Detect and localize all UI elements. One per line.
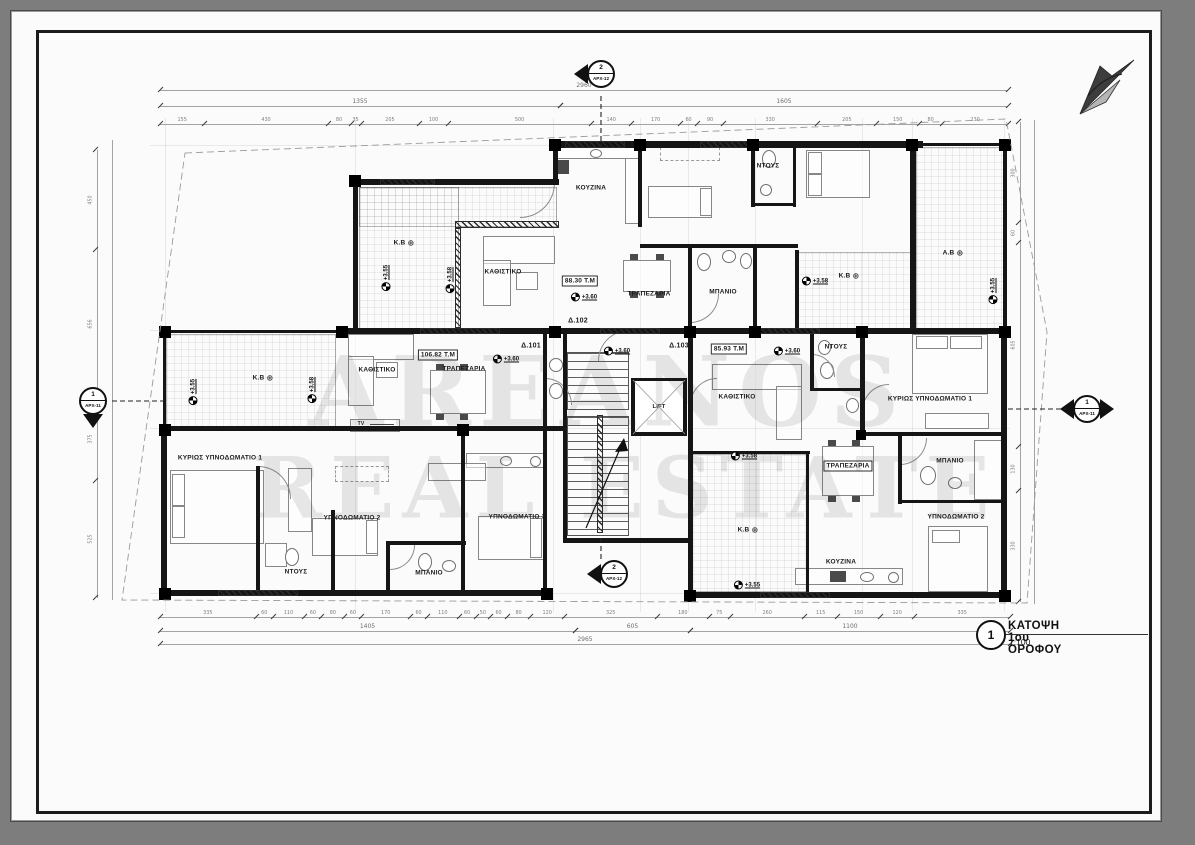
room-label: Κ.Β⊕ [738, 526, 759, 535]
column [549, 139, 561, 151]
fixture [590, 149, 602, 158]
hatched-wall [455, 221, 559, 228]
fixture [442, 560, 456, 572]
furniture [974, 440, 1004, 500]
wall [806, 453, 809, 593]
column [336, 326, 348, 338]
section-divider [589, 73, 613, 74]
level-icon [989, 295, 998, 304]
section-number: 1 [1073, 399, 1101, 406]
dimension-label: 60 [261, 611, 267, 616]
section-triangle [1100, 399, 1114, 419]
dimension-label: 150 [893, 118, 902, 123]
column [747, 139, 759, 151]
dimension-label: 60 [310, 611, 316, 616]
wall [920, 143, 1006, 146]
section-number: 2 [600, 564, 628, 571]
appliance [828, 440, 836, 446]
hatched-wall [597, 415, 603, 533]
wall [683, 378, 687, 436]
dimension-line [575, 631, 690, 632]
dimension-label: 205 [842, 118, 851, 123]
column [457, 424, 469, 436]
dimension-line [97, 150, 98, 598]
wall [640, 244, 798, 248]
dimension-label: 130 [1012, 464, 1017, 473]
dimension-line [160, 124, 1008, 125]
section-marker-bottom: 2ΑΡΧ-12 [600, 560, 628, 588]
drawing-number-badge: 1 [976, 620, 1006, 650]
furniture [932, 530, 960, 543]
section-ref: ΑΡΧ-12 [587, 76, 615, 81]
fixture [549, 358, 563, 372]
appliance [828, 496, 836, 502]
dimension-label: 60 [464, 611, 470, 616]
dimension-label: 1100 [842, 624, 857, 630]
hatched-wall [218, 590, 298, 596]
fixture-circle-icon: ⊕ [956, 249, 963, 258]
appliance [852, 440, 860, 446]
level-icon [734, 581, 743, 590]
wall [753, 248, 757, 330]
furniture [428, 463, 486, 481]
dimension-label: 155 [178, 118, 187, 123]
room-label: ΤΡΑΠΕΖΑΡΙΑ [442, 366, 485, 373]
fixture-circle-icon: ⊕ [852, 272, 859, 281]
wall [688, 332, 693, 594]
level-marker: +3.58 [731, 452, 757, 461]
section-divider [602, 573, 626, 574]
furniture [366, 520, 378, 554]
wall [331, 510, 335, 592]
dimension-label: 110 [438, 611, 447, 616]
wall [795, 250, 799, 330]
wall [161, 428, 167, 596]
hatched-wall [600, 328, 660, 334]
column [749, 326, 761, 338]
room-label: ΚΥΡΙΩΣ ΥΠΝΟΔΩΜΑΤΙΟ 1 [888, 396, 972, 403]
hatched-wall [380, 179, 435, 185]
dimension-line [1020, 122, 1021, 602]
furniture [950, 336, 982, 349]
wall [163, 332, 166, 430]
furniture [776, 386, 802, 440]
room-label: ΚΟΥΖΙΝΑ [826, 559, 856, 566]
room-label: Κ.Β⊕ [839, 272, 860, 281]
dimension-label: 335 [957, 611, 966, 616]
furniture [808, 152, 822, 174]
wall [810, 332, 814, 390]
room-label: Κ.Β⊕ [394, 239, 415, 248]
appliance [830, 571, 846, 582]
apartment-id: Δ.102 [568, 318, 588, 325]
section-triangle [587, 564, 601, 584]
column [541, 588, 553, 600]
wall [688, 246, 692, 332]
dimension-label: 75 [716, 611, 722, 616]
room-label: ΤΡΑΠΕΖΑΡΙΑ [627, 291, 670, 298]
wall [860, 328, 865, 438]
dimension-label: 375 [89, 434, 94, 443]
apartment-id: Δ.103 [669, 343, 689, 350]
level-marker: +3.60 [604, 347, 630, 356]
room-label: ΚΑΘΙΣΤΙΚΟ [718, 394, 755, 401]
dimension-label: 325 [606, 611, 615, 616]
dimension-label: 525 [89, 535, 94, 544]
dimension-label: 205 [385, 118, 394, 123]
fixture [860, 572, 874, 582]
room-label: ΚΑΘΙΣΤΙΚΟ [358, 367, 395, 374]
dimension-label: 300 [1012, 168, 1017, 177]
dimension-label: 430 [261, 118, 270, 123]
room-label: Κ.Β⊕ [253, 374, 274, 383]
column [549, 326, 561, 338]
veranda-grid [797, 252, 911, 330]
dimension-label: 450 [89, 196, 94, 205]
dimension-line [690, 631, 1010, 632]
dimension-label: 80 [928, 118, 934, 123]
fixture-circle-icon: ⊕ [751, 526, 758, 535]
wall [353, 183, 358, 332]
level-marker: +3.55 [734, 581, 760, 590]
dimension-label: 120 [542, 611, 551, 616]
room-label: ΤΡΑΠΕΖΑΡΙΑ [823, 461, 872, 472]
wall [898, 500, 1005, 503]
fixture [500, 456, 512, 466]
fixture [888, 572, 899, 583]
furniture [172, 474, 185, 506]
wall [631, 378, 687, 381]
hatched-wall [455, 228, 461, 328]
column [906, 139, 918, 151]
area-label: 88.30 Τ.Μ [562, 276, 598, 287]
room-label: ΚΑΘΙΣΤΙΚΟ [484, 269, 521, 276]
column [684, 590, 696, 602]
dimension-label: 120 [892, 611, 901, 616]
wardrobe-dashed [335, 466, 389, 482]
level-marker: +3.58 [446, 267, 455, 293]
wall [563, 332, 567, 538]
fixture [530, 456, 541, 467]
furniture [623, 260, 671, 292]
apartment-id: Δ.101 [521, 343, 541, 350]
lift-label: LIFT [652, 404, 665, 410]
wall [165, 330, 343, 333]
dimension-line [160, 90, 1008, 91]
furniture [172, 506, 185, 538]
section-divider [1075, 408, 1099, 409]
dimension-label: 180 [678, 611, 687, 616]
fixture [920, 466, 936, 485]
level-icon [571, 293, 580, 302]
wall [793, 145, 796, 207]
level-icon [802, 277, 811, 286]
dimension-line [560, 106, 1008, 107]
appliance [436, 414, 444, 420]
furniture [925, 413, 989, 429]
room-label: ΝΤΟΥΣ [757, 163, 780, 170]
dimension-label: 80 [336, 118, 342, 123]
wall [631, 378, 635, 436]
dimension-label: 90 [707, 118, 713, 123]
dimension-label: 110 [284, 611, 293, 616]
level-marker: +3.60 [774, 347, 800, 356]
wall [1001, 330, 1007, 598]
section-triangle [574, 64, 588, 84]
fixture [948, 477, 962, 489]
dimension-label: 80 [330, 611, 336, 616]
section-number: 2 [587, 64, 615, 71]
wall [563, 538, 693, 543]
dimension-label: 1605 [776, 99, 791, 105]
level-marker: +3.60 [571, 293, 597, 302]
room-label: ΜΠΑΝΙΟ [415, 570, 443, 577]
level-marker: +3.55 [189, 379, 198, 405]
column [634, 139, 646, 151]
section-triangle [83, 414, 103, 428]
level-marker: +3.58 [802, 277, 828, 286]
dimension-label: 330 [1012, 542, 1017, 551]
dimension-line [1034, 120, 1035, 604]
appliance [630, 254, 638, 260]
level-icon [382, 282, 391, 291]
column [159, 588, 171, 600]
room-label: ΝΤΟΥΣ [825, 344, 848, 351]
dimension-label: 656 [89, 319, 94, 328]
wall [461, 428, 465, 592]
level-icon [604, 347, 613, 356]
dimension-label: 60 [350, 611, 356, 616]
room-label: ΚΥΡΙΩΣ ΥΠΝΟΔΩΜΑΤΙΟ 1 [178, 455, 262, 462]
dimension-label: 60 [1012, 230, 1017, 236]
furniture [430, 370, 486, 414]
appliance [370, 424, 394, 425]
dimension-label: 330 [766, 118, 775, 123]
wall [688, 592, 1006, 598]
wall [543, 332, 547, 428]
dimension-label: 260 [762, 611, 771, 616]
dimension-label: 500 [515, 118, 524, 123]
wall [386, 543, 390, 592]
column [349, 175, 361, 187]
column [856, 430, 866, 440]
area-label: 85.93 Τ.Μ [711, 344, 747, 355]
dimension-line [160, 106, 560, 107]
column [999, 326, 1011, 338]
fixture [722, 250, 736, 263]
dimension-label: 2965 [577, 637, 592, 643]
veranda-grid [359, 187, 459, 330]
column [159, 326, 171, 338]
furniture [288, 468, 312, 532]
section-marker-top: 2ΑΡΧ-12 [587, 60, 615, 88]
drawing-scale: 1:100 [1009, 637, 1030, 647]
wall [386, 541, 466, 545]
room-label: Α.Β⊕ [943, 249, 964, 258]
section-ref: ΑΡΧ-11 [79, 403, 107, 408]
dimension-label: 170 [381, 611, 390, 616]
column [159, 424, 171, 436]
section-divider [81, 400, 105, 401]
dimension-label: 605 [627, 624, 638, 630]
furniture [700, 188, 712, 216]
room-label: ΝΤΟΥΣ [285, 569, 308, 576]
room-label: ΚΟΥΖΙΝΑ [576, 185, 606, 192]
veranda-grid [692, 454, 808, 592]
dimension-label: 335 [203, 611, 212, 616]
dimension-label: 115 [816, 611, 825, 616]
furniture [530, 518, 542, 558]
level-icon [774, 347, 783, 356]
section-marker-left: 1ΑΡΧ-11 [79, 387, 107, 415]
dimension-label: 60 [685, 118, 691, 123]
wall [1003, 143, 1007, 333]
section-ref: ΑΡΧ-11 [1073, 411, 1101, 416]
appliance [460, 414, 468, 420]
area-label: 106.82 Τ.Μ [418, 350, 458, 361]
dimension-label: 605 [1012, 340, 1017, 349]
fixture [846, 398, 859, 413]
dimension-line [160, 644, 1010, 645]
level-icon [731, 452, 740, 461]
column [999, 139, 1011, 151]
column [999, 590, 1011, 602]
dimension-label: 1405 [360, 624, 375, 630]
furniture [795, 568, 903, 585]
level-marker: +3.55 [989, 278, 998, 304]
column [684, 326, 696, 338]
dimension-label: 230 [970, 118, 979, 123]
dimension-label: 60 [495, 611, 501, 616]
wall [543, 428, 547, 590]
wall [860, 432, 1006, 436]
level-icon [189, 396, 198, 405]
section-ref: ΑΡΧ-12 [600, 576, 628, 581]
drawing-sheet: ΚΟΥΖΙΝΑΚΑΘΙΣΤΙΚΟΤΡΑΠΕΖΑΡΙΑΜΠΑΝΙΟΝΤΟΥΣΚ.Β… [0, 0, 1195, 845]
appliance [852, 496, 860, 502]
dimension-label: 35 [352, 118, 358, 123]
level-icon [308, 394, 317, 403]
room-label: ΥΠΝΟΔΩΜΑΤΙΟ 2 [928, 514, 985, 521]
hatched-wall [565, 141, 625, 148]
furniture [348, 356, 374, 406]
wardrobe-dashed [660, 147, 720, 161]
room-label: ΜΠΑΝΙΟ [936, 458, 964, 465]
level-icon [493, 355, 502, 364]
dimension-line [160, 617, 1010, 618]
wall [638, 145, 642, 227]
section-marker-right: 1ΑΡΧ-11 [1073, 395, 1101, 423]
title-underline [1006, 634, 1148, 635]
dimension-label: 150 [854, 611, 863, 616]
wall [810, 388, 862, 391]
dimension-label: 80 [515, 611, 521, 616]
fixture [697, 253, 711, 271]
level-marker: +3.60 [493, 355, 519, 364]
fixture-circle-icon: ⊕ [266, 374, 273, 383]
dimension-line [112, 140, 113, 600]
hatched-wall [760, 592, 830, 598]
wall [898, 436, 902, 504]
dimension-label: 50 [480, 611, 486, 616]
tv-label: TV [358, 421, 365, 427]
appliance [656, 254, 664, 260]
fixture [418, 553, 432, 571]
wall [631, 432, 687, 436]
room-label: ΥΠΝΟΔΩΜΑΤΙΟ 3 [489, 514, 546, 521]
dimension-label: 140 [607, 118, 616, 123]
fixture [285, 548, 299, 566]
dimension-label: 100 [429, 118, 438, 123]
section-triangle [1060, 399, 1074, 419]
room-label: ΥΠΝΟΔΩΜΑΤΙΟ 2 [324, 515, 381, 522]
section-number: 1 [79, 391, 107, 398]
dimension-label: 1355 [352, 99, 367, 105]
room-label: ΜΠΑΝΙΟ [709, 289, 737, 296]
wall [256, 466, 260, 592]
fixture-circle-icon: ⊕ [407, 239, 414, 248]
wall [751, 145, 755, 207]
fixture [760, 184, 772, 196]
appliance [557, 160, 569, 174]
hatched-wall [420, 328, 500, 334]
dimension-label: 170 [651, 118, 660, 123]
dimension-line [160, 631, 575, 632]
column [856, 326, 868, 338]
level-marker: +3.58 [308, 377, 317, 403]
wall [910, 143, 916, 332]
level-marker: +3.55 [382, 265, 391, 291]
hatched-wall [760, 328, 820, 334]
furniture [265, 543, 287, 567]
dimension-label: 60 [415, 611, 421, 616]
furniture [808, 174, 822, 196]
level-icon [446, 284, 455, 293]
wall [751, 203, 796, 206]
furniture [916, 336, 948, 349]
furniture [483, 260, 511, 306]
fixture [740, 253, 752, 269]
